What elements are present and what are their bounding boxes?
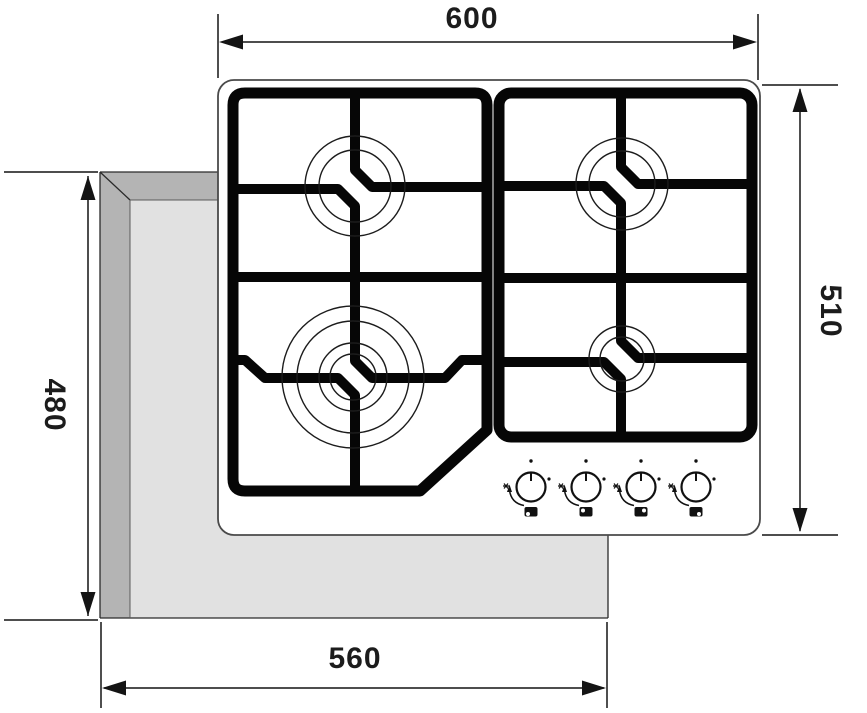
flame-dot-icon bbox=[712, 477, 715, 480]
dim-label-cutout-depth: 480 bbox=[37, 365, 71, 445]
arrowhead-down-icon bbox=[793, 508, 808, 532]
hob-installation-diagram: 600 510 480 560 bbox=[0, 0, 867, 713]
off-dot-icon bbox=[694, 459, 697, 462]
burner-position-icon-rear-left bbox=[580, 507, 593, 517]
off-dot-icon bbox=[529, 459, 532, 462]
arrowhead-down-icon bbox=[81, 592, 96, 616]
arrowhead-right-icon bbox=[582, 681, 606, 696]
diagram-canvas bbox=[0, 0, 867, 713]
off-dot-icon bbox=[584, 459, 587, 462]
arrowhead-left-icon bbox=[219, 35, 243, 50]
burner-position-icon-front-right bbox=[690, 507, 703, 517]
flame-dot-icon bbox=[602, 477, 605, 480]
arrowhead-left-icon bbox=[102, 681, 126, 696]
flame-dot-icon bbox=[547, 477, 550, 480]
dim-label-hob-width: 600 bbox=[432, 2, 512, 36]
burner-position-icon-front-left bbox=[525, 507, 538, 517]
arrowhead-right-icon bbox=[733, 35, 757, 50]
off-dot-icon bbox=[639, 459, 642, 462]
dim-label-hob-depth: 510 bbox=[813, 271, 847, 351]
burner-position-icon-rear-right bbox=[635, 507, 648, 517]
arrowhead-up-icon bbox=[81, 176, 96, 200]
arrowhead-up-icon bbox=[793, 88, 808, 112]
dim-label-cutout-width: 560 bbox=[315, 642, 395, 676]
flame-dot-icon bbox=[657, 477, 660, 480]
